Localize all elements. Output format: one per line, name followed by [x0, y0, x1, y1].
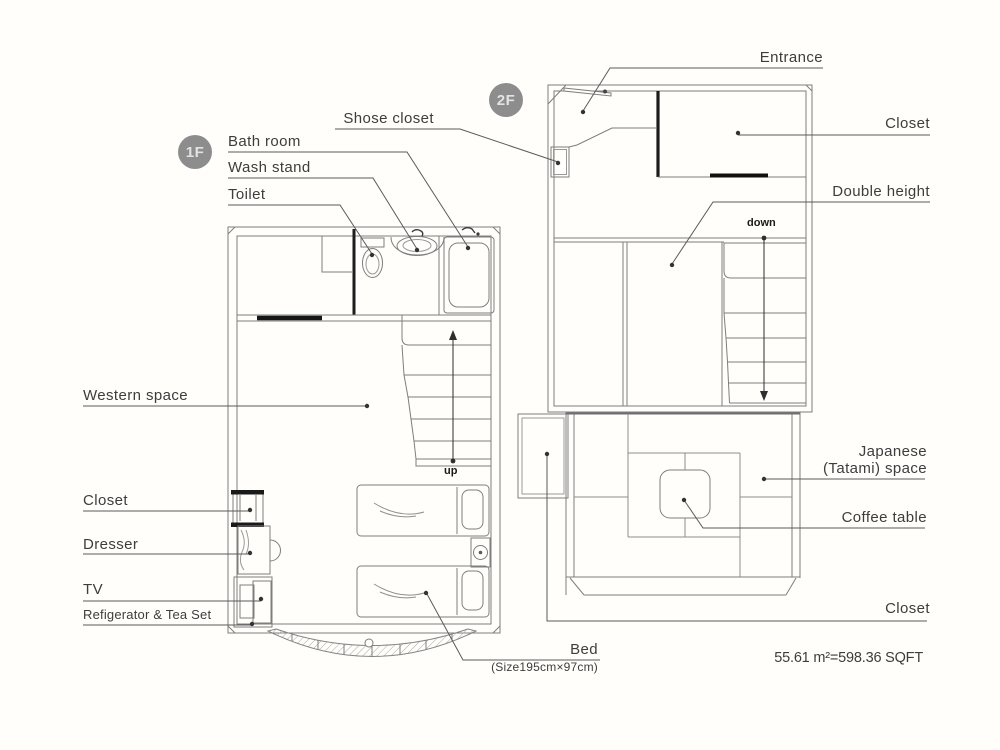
- 1f-walls: [228, 227, 500, 633]
- label-bed: Bed: [570, 642, 598, 659]
- leader-toilet: [228, 205, 372, 254]
- floor-badge-1f: 1F: [178, 135, 212, 169]
- 1f-beds: [357, 485, 490, 617]
- label-closet-2f-top: Closet: [885, 116, 930, 133]
- label-toilet: Toilet: [228, 187, 265, 204]
- area-text: 55.61 m²=598.36 SQFT: [774, 650, 923, 666]
- label-bed-size: (Size195cm×97cm): [491, 661, 598, 674]
- plan-1f: [228, 227, 500, 657]
- leader-shose-closet: [335, 129, 558, 162]
- label-double-height: Double height: [832, 184, 930, 201]
- 2f-stairs: [724, 243, 806, 403]
- floor-badge-2f: 2F: [489, 83, 523, 117]
- floorplan-page: 1F 2F Bath room Wash stand Toilet Shose …: [0, 0, 1000, 750]
- label-japanese-line1: Japanese: [823, 444, 927, 461]
- leader-closet-2f-bottom: [547, 455, 927, 621]
- down-arrow: [760, 236, 768, 401]
- 2f-walls: [548, 85, 812, 412]
- label-closet-1f: Closet: [83, 493, 128, 510]
- label-tv: TV: [83, 582, 103, 599]
- label-coffee-table: Coffee table: [842, 510, 927, 527]
- label-bath-room: Bath room: [228, 134, 301, 151]
- label-up: up: [444, 465, 457, 477]
- leader-entrance: [583, 68, 823, 111]
- label-refrigerator: Refigerator & Tea Set: [83, 608, 211, 623]
- label-entrance: Entrance: [760, 50, 823, 67]
- label-closet-2f-bottom: Closet: [885, 601, 930, 618]
- label-shose-closet: Shose closet: [343, 111, 434, 128]
- 1f-stairs: [402, 315, 491, 466]
- 2f-tatami-room: [518, 412, 800, 595]
- coffee-table-shape: [660, 470, 710, 518]
- leader-double-height: [672, 202, 930, 264]
- label-dresser: Dresser: [83, 537, 138, 554]
- label-wash-stand: Wash stand: [228, 160, 311, 177]
- bathtub-fixture: [444, 228, 494, 313]
- label-japanese-line2: (Tatami) space: [823, 461, 927, 478]
- plan-2f: [518, 85, 812, 595]
- toilet-fixture: [361, 238, 384, 278]
- label-down: down: [747, 217, 776, 229]
- label-japanese-space: Japanese (Tatami) space: [823, 444, 927, 478]
- label-western-space: Western space: [83, 388, 188, 405]
